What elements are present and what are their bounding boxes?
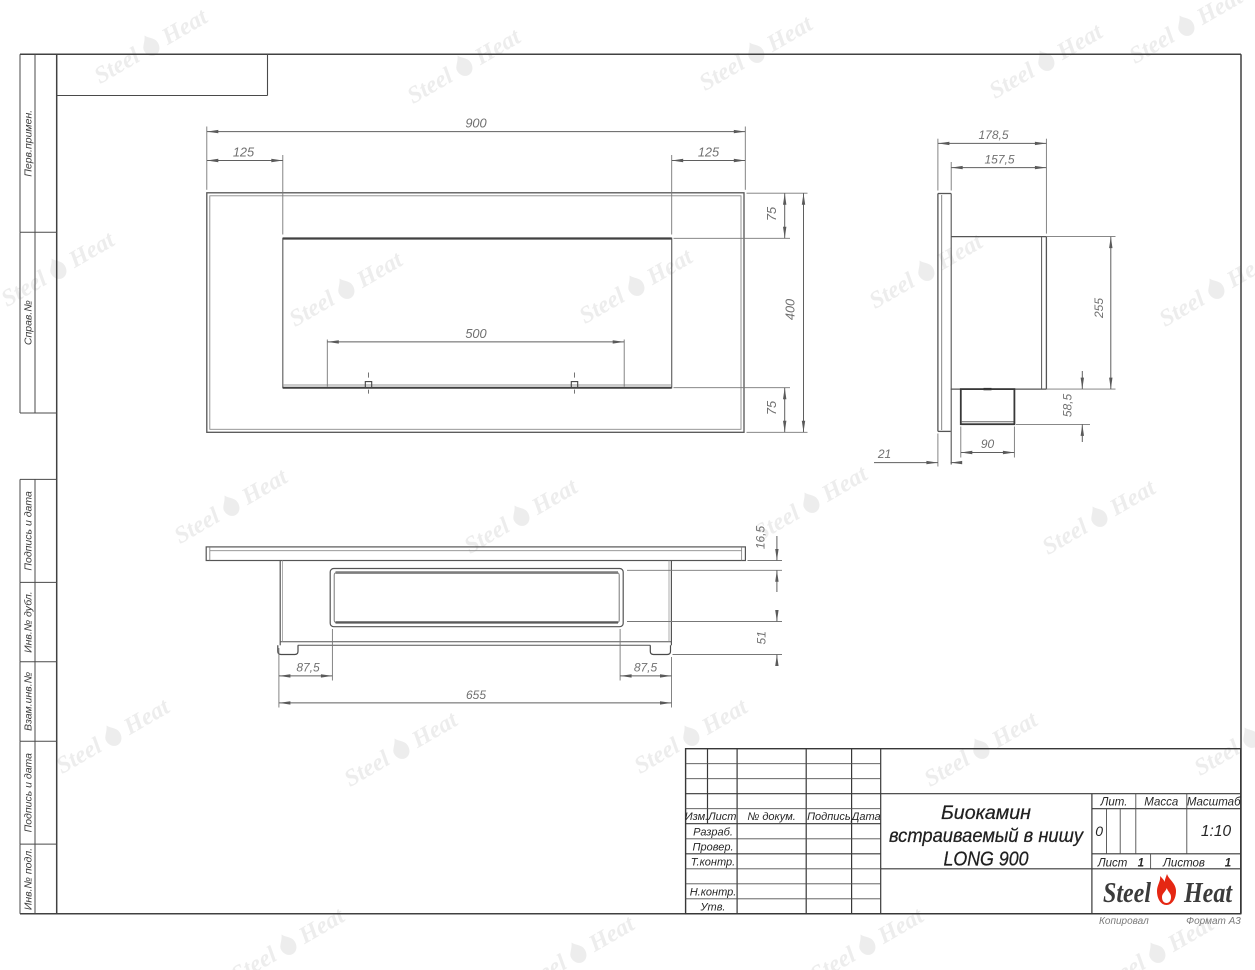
svg-text:Steel: Steel — [1103, 878, 1151, 909]
svg-text:125: 125 — [698, 145, 720, 160]
svg-text:Формат А3: Формат А3 — [1186, 916, 1241, 927]
svg-text:Копировал: Копировал — [1099, 916, 1149, 927]
svg-text:400: 400 — [783, 298, 798, 320]
svg-text:125: 125 — [233, 145, 255, 160]
svg-text:655: 655 — [466, 688, 486, 702]
svg-text:75: 75 — [764, 400, 779, 415]
svg-text:Инв.№ дубл.: Инв.№ дубл. — [23, 591, 35, 653]
svg-text:51: 51 — [755, 631, 769, 644]
svg-text:Изм.: Изм. — [685, 811, 708, 823]
svg-text:Н.контр.: Н.контр. — [690, 887, 737, 899]
svg-text:178,5: 178,5 — [978, 128, 1008, 142]
svg-text:157,5: 157,5 — [984, 153, 1014, 167]
svg-text:Лит.: Лит. — [1100, 796, 1128, 808]
svg-text:Разраб.: Разраб. — [693, 827, 733, 839]
svg-text:900: 900 — [465, 116, 487, 131]
svg-text:Утв.: Утв. — [700, 902, 726, 914]
svg-text:Перв.примен.: Перв.примен. — [23, 110, 35, 177]
svg-text:Инв.№ подл.: Инв.№ подл. — [23, 848, 35, 910]
svg-text:1: 1 — [1138, 857, 1144, 869]
svg-text:16,5: 16,5 — [754, 525, 768, 549]
svg-text:Т.контр.: Т.контр. — [691, 857, 735, 869]
svg-text:Биокамин: Биокамин — [941, 802, 1031, 824]
svg-text:90: 90 — [981, 437, 995, 451]
svg-text:Лист: Лист — [1097, 857, 1128, 869]
svg-text:Масса: Масса — [1144, 796, 1178, 808]
svg-text:LONG 900: LONG 900 — [944, 849, 1029, 871]
svg-text:Heat: Heat — [1183, 878, 1233, 909]
svg-text:255: 255 — [1092, 298, 1106, 319]
svg-text:87,5: 87,5 — [296, 661, 320, 675]
svg-text:500: 500 — [465, 326, 487, 341]
svg-text:встраиваемый в нишу: встраиваемый в нишу — [889, 825, 1084, 847]
svg-text:Масштаб: Масштаб — [1187, 796, 1241, 808]
svg-text:87,5: 87,5 — [634, 661, 658, 675]
svg-text:Подпись: Подпись — [807, 811, 851, 823]
svg-text:75: 75 — [764, 206, 779, 221]
svg-text:1:10: 1:10 — [1201, 823, 1232, 840]
svg-text:Листов: Листов — [1162, 857, 1205, 869]
svg-text:1: 1 — [1225, 857, 1231, 869]
svg-text:Лист: Лист — [707, 811, 736, 823]
svg-text:Подпись и дата: Подпись и дата — [23, 753, 35, 833]
svg-text:Подпись и дата: Подпись и дата — [23, 491, 35, 571]
svg-text:58,5: 58,5 — [1061, 393, 1075, 417]
svg-text:Дата: Дата — [850, 811, 881, 823]
svg-text:0: 0 — [1095, 823, 1103, 839]
svg-text:Провер.: Провер. — [693, 842, 734, 854]
svg-text:№ докум.: № докум. — [747, 811, 795, 823]
svg-text:21: 21 — [877, 447, 891, 461]
svg-text:Справ.№: Справ.№ — [23, 300, 35, 345]
svg-text:Взам.инв.№: Взам.инв.№ — [23, 672, 35, 731]
